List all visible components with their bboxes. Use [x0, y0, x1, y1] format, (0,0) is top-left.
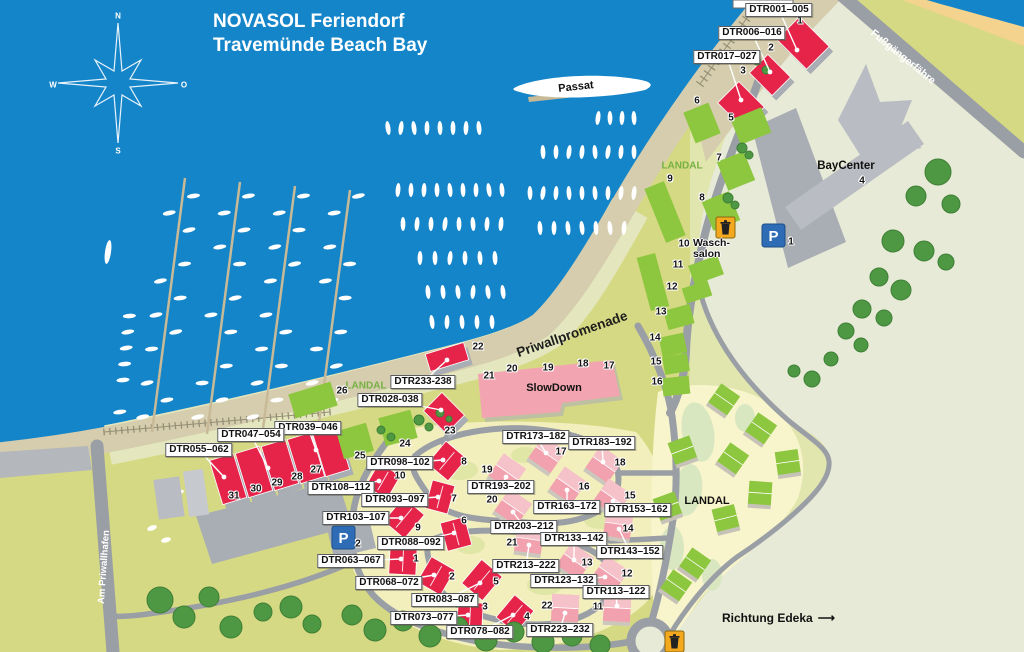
dtr-label: DTR088–092	[377, 536, 444, 550]
tree	[723, 193, 733, 203]
dtr-label: DTR113–122	[583, 585, 650, 599]
map-title: NOVASOL FeriendorfTravemünde Beach Bay	[213, 10, 427, 58]
building-number: 14	[649, 333, 660, 344]
parking-sign-2: P	[332, 526, 355, 549]
tree	[914, 241, 934, 261]
building-number: 19	[481, 465, 492, 476]
dtr-label: DTR193–202	[467, 480, 534, 494]
tree	[173, 606, 195, 628]
building-number: 30	[250, 484, 261, 495]
tree	[342, 605, 362, 625]
dtr-label: DTR047–054	[217, 428, 284, 442]
tree	[254, 603, 272, 621]
parking-letter: P	[768, 228, 778, 245]
building-number: 3	[482, 602, 488, 613]
building-number: 22	[472, 342, 483, 353]
tree	[788, 365, 800, 377]
building-number: 12	[621, 569, 632, 580]
dtr-label: DTR055–062	[165, 443, 232, 457]
tree	[220, 616, 242, 638]
building-number: 20	[506, 364, 517, 375]
landal-label-north: LANDAL	[661, 161, 702, 172]
tree	[891, 280, 911, 300]
tree	[838, 323, 854, 339]
dtr-label: DTR183–192	[568, 436, 635, 450]
building-number: 10	[678, 239, 689, 250]
building-number: 1	[797, 16, 803, 27]
tree	[737, 143, 747, 153]
tree	[387, 433, 395, 441]
dtr-label: DTR028-038	[357, 393, 422, 407]
roundabout	[631, 622, 669, 652]
dtr-label: DTR006–016	[718, 26, 785, 40]
building-number: 13	[655, 307, 666, 318]
tree	[446, 416, 452, 422]
building-number: 31	[228, 491, 239, 502]
building-number: 13	[581, 558, 592, 569]
parking-letter: P	[338, 530, 348, 547]
building-number: 23	[444, 426, 455, 437]
building-number: 7	[451, 494, 457, 505]
dtr-label: DTR073–077	[390, 611, 457, 625]
waste-bin-icon	[665, 631, 684, 652]
building-number: 4	[859, 176, 865, 187]
map-canvas: P P	[0, 0, 1024, 652]
building-number: 27	[310, 465, 321, 476]
building-number: 9	[415, 523, 421, 534]
building-number: 25	[354, 451, 365, 462]
building-number: 10	[394, 471, 405, 482]
dtr-label: DTR233-238	[390, 375, 455, 389]
dtr-label: DTR103–107	[322, 511, 389, 525]
tree	[942, 195, 960, 213]
building-number: 8	[699, 193, 705, 204]
dtr-label: DTR173–182	[502, 430, 569, 444]
building-number: 11	[673, 260, 684, 271]
building-number: 2	[449, 572, 455, 583]
building-number: 5	[493, 577, 499, 588]
building-number: 12	[666, 282, 677, 293]
tree	[364, 619, 386, 641]
building-number: 21	[506, 538, 517, 549]
building-number: 5	[728, 113, 734, 124]
compass-w: W	[49, 81, 57, 90]
tree	[303, 615, 321, 633]
building-number: 26	[336, 386, 347, 397]
tree	[377, 426, 385, 434]
slowdown-label: SlowDown	[526, 382, 582, 394]
tree	[280, 596, 302, 618]
building-number: 16	[651, 377, 662, 388]
building-number: 4	[524, 612, 530, 623]
building-number: 14	[622, 524, 633, 535]
building-number: 6	[694, 96, 700, 107]
building-number: 22	[541, 601, 552, 612]
dtr-label: DTR143–152	[596, 545, 663, 559]
dtr-label: DTR213–222	[492, 559, 559, 573]
tree	[590, 635, 610, 652]
tree	[882, 230, 904, 252]
building-number: 8	[461, 457, 467, 468]
building-number: 2	[768, 43, 774, 54]
building	[551, 594, 580, 626]
building-number: 20	[486, 495, 497, 506]
dtr-label: DTR083–087	[411, 593, 478, 607]
waste-bin-icon	[716, 217, 735, 238]
dtr-label: DTR078–082	[446, 625, 513, 639]
tree	[938, 254, 954, 270]
building-number: 29	[271, 478, 282, 489]
building-number: 7	[716, 153, 722, 164]
tree	[870, 268, 888, 286]
parking-sign-1: P	[762, 224, 785, 247]
tree	[925, 159, 951, 185]
dtr-label: DTR098–102	[366, 456, 433, 470]
landal-label-south: LANDAL	[684, 495, 729, 507]
building-number: 17	[603, 361, 614, 372]
building-number: 15	[624, 491, 635, 502]
building-number: 11	[593, 602, 604, 613]
building-number: 1	[788, 237, 794, 248]
dtr-label: DTR068–072	[355, 576, 422, 590]
tree	[804, 371, 820, 387]
building-number: 15	[650, 357, 661, 368]
building-number: 1	[413, 554, 419, 565]
dtr-label: DTR093–097	[361, 493, 428, 507]
tree	[854, 338, 868, 352]
building-number: 28	[291, 472, 302, 483]
east-arrow-icon: ⟶	[818, 611, 835, 625]
brand: NOVASOL	[213, 11, 305, 32]
dtr-label: DTR133–142	[540, 532, 607, 546]
building-number: 3	[740, 66, 746, 77]
landal-label-west: LANDAL	[345, 381, 386, 392]
tree	[745, 151, 753, 159]
building-number: 19	[542, 363, 553, 374]
building-number: 6	[461, 516, 467, 527]
tree	[824, 352, 838, 366]
building	[748, 481, 773, 510]
tree	[147, 587, 173, 613]
building-number: 9	[667, 174, 673, 185]
laundry-label: Wasch-salon	[693, 238, 730, 260]
compass-o: O	[181, 81, 187, 90]
tree	[199, 587, 219, 607]
building-number: 2	[355, 539, 361, 550]
baycenter-label: BayCenter	[817, 160, 875, 172]
compass-s: S	[115, 147, 120, 156]
dtr-label: DTR163–172	[533, 500, 600, 514]
building	[662, 376, 691, 397]
direction-edeka: Richtung Edeka⟶	[722, 611, 835, 625]
tree	[425, 423, 433, 431]
map-subtitle: Travemünde Beach Bay	[213, 35, 427, 56]
tree	[853, 300, 871, 318]
compass-n: N	[115, 12, 121, 21]
tree	[419, 625, 441, 647]
dtr-label: DTR017–027	[693, 50, 760, 64]
dtr-label: DTR223–232	[526, 623, 593, 637]
building-number: 16	[578, 482, 589, 493]
building-number: 18	[577, 359, 588, 370]
building-number: 21	[483, 371, 494, 382]
tree	[876, 310, 892, 326]
building-number: 18	[614, 458, 625, 469]
dtr-label: DTR001–005	[745, 3, 812, 17]
resort-map: P P NOVASOL FeriendorfTravemünde Beach B…	[0, 0, 1024, 652]
tree	[731, 201, 739, 209]
dtr-label: DTR063–067	[317, 554, 384, 568]
building	[775, 449, 802, 479]
tree	[906, 186, 926, 206]
tree	[414, 415, 424, 425]
building-number: 24	[399, 439, 410, 450]
building-number: 17	[555, 447, 566, 458]
dtr-label: DTR153–162	[604, 503, 671, 517]
